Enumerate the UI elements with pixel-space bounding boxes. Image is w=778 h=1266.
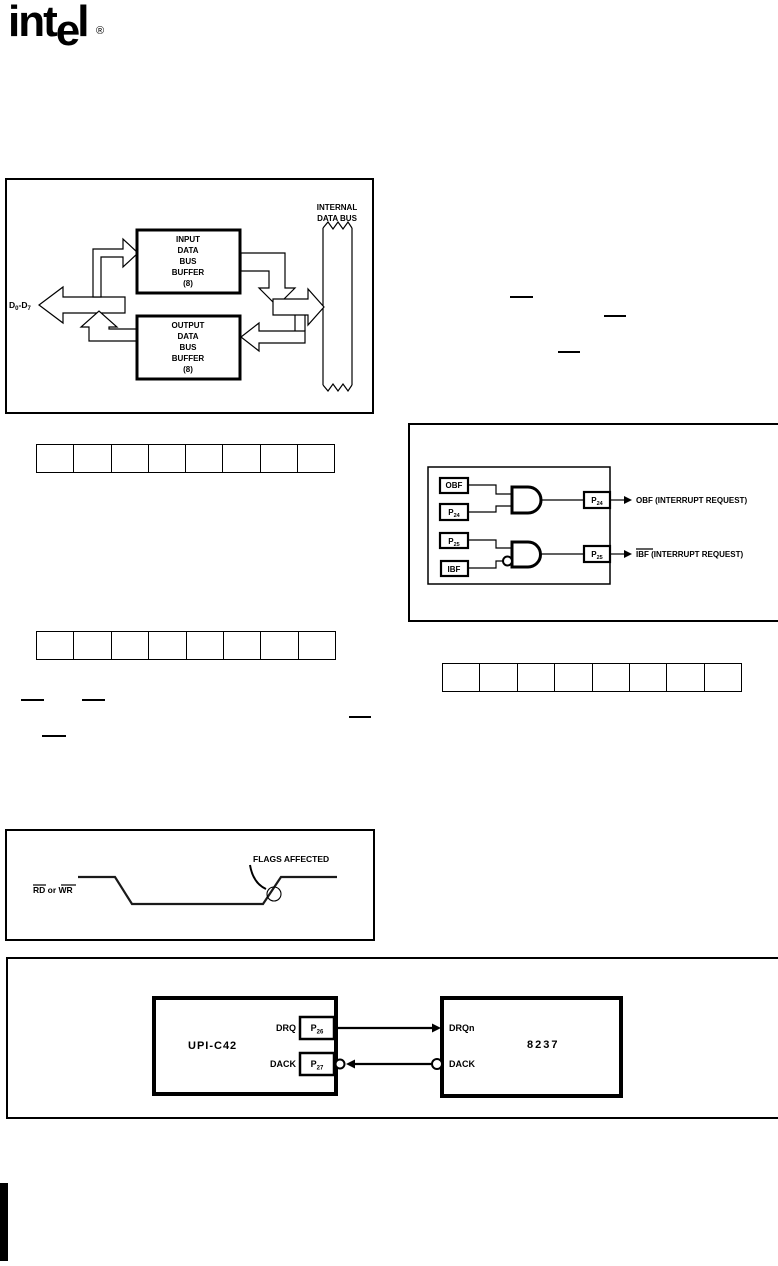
- svg-text:INPUT: INPUT: [176, 235, 200, 244]
- svg-text:BUFFER: BUFFER: [172, 354, 205, 363]
- intel-logo: intel ®: [8, 0, 87, 44]
- register-bit-cell: [299, 632, 335, 659]
- overline-mark: [510, 296, 533, 298]
- svg-text:DATA: DATA: [177, 332, 198, 341]
- register-bit-cell: [224, 632, 261, 659]
- svg-text:BUS: BUS: [180, 257, 198, 266]
- dack-p27-bubble: [336, 1060, 345, 1069]
- svg-text:OUTPUT: OUTPUT: [172, 321, 205, 330]
- and-gate-obf: [512, 487, 541, 513]
- ibf-flag-label: IBF: [448, 565, 461, 574]
- overline-mark: [349, 716, 371, 718]
- drq-label: DRQ: [276, 1023, 296, 1033]
- internal-data-bus-label-line1: INTERNAL: [317, 203, 358, 212]
- rd-or-wr-label: RD or WR: [33, 885, 73, 895]
- obf-flag-label: OBF: [446, 481, 463, 490]
- d0-d7-label: D0-D7: [9, 300, 31, 312]
- logo-text-e: e: [56, 6, 78, 55]
- figure-dma-interface: UPI-C42 8237 P26 P27 DRQ DACK DRQn DACK: [6, 957, 778, 1119]
- register-bit-cell: [74, 632, 111, 659]
- register-bit-cell: [186, 445, 223, 472]
- register-bit-cell: [112, 632, 149, 659]
- register-row-3: [442, 663, 742, 692]
- d0-d7-left-arrow: [39, 287, 125, 323]
- ibf-request-arrowhead: [624, 550, 632, 558]
- drqn-label: DRQn: [449, 1023, 475, 1033]
- internal-data-bus-label-line2: DATA BUS: [317, 214, 358, 223]
- upi-c42-box: [154, 998, 336, 1094]
- dack-label: DACK: [270, 1059, 296, 1069]
- upi-c42-label: UPI-C42: [188, 1040, 237, 1052]
- dma-8237-label: 8237: [527, 1039, 559, 1051]
- overline-mark: [558, 351, 580, 353]
- svg-text:BUS: BUS: [180, 343, 198, 352]
- svg-text:BUFFER: BUFFER: [172, 268, 205, 277]
- register-bit-cell: [555, 664, 592, 691]
- register-bit-cell: [149, 445, 186, 472]
- register-bit-cell: [261, 632, 298, 659]
- register-bit-cell: [667, 664, 704, 691]
- dma-interface-diagram: UPI-C42 8237 P26 P27 DRQ DACK DRQn DACK: [8, 959, 774, 1113]
- register-bit-cell: [518, 664, 555, 691]
- p27-port-box: [300, 1053, 334, 1075]
- flags-affected-label: FLAGS AFFECTED: [253, 854, 329, 864]
- inverter-bubble: [503, 557, 512, 566]
- obf-request-arrowhead: [624, 496, 632, 504]
- register-bit-cell: [630, 664, 667, 691]
- overline-mark: [42, 735, 66, 737]
- register-bit-cell: [149, 632, 186, 659]
- figure-data-bus-buffer: INTERNAL DATA BUS INPUT DATA BUS BUFFER: [5, 178, 374, 414]
- register-bit-cell: [37, 445, 74, 472]
- overline-mark: [21, 699, 44, 701]
- register-bit-cell: [443, 664, 480, 691]
- logo-text-int: int: [8, 0, 56, 46]
- dack-8237-label: DACK: [449, 1059, 475, 1069]
- internal-data-bus: [323, 222, 352, 391]
- ibf-interrupt-request-label: IBF (INTERRUPT REQUEST): [636, 550, 743, 559]
- interrupt-logic-diagram: OBF P24 P25 IBF P24 P25 OBF (INTERRUPT R…: [410, 425, 774, 616]
- register-bit-cell: [74, 445, 111, 472]
- flag-timing-diagram: RD or WR FLAGS AFFECTED: [7, 831, 369, 935]
- figure-interrupt-logic: OBF P24 P25 IBF P24 P25 OBF (INTERRUPT R…: [408, 423, 778, 622]
- p26-port-box: [300, 1017, 334, 1039]
- and-gate-ibf: [512, 542, 541, 567]
- register-bit-cell: [223, 445, 260, 472]
- overline-mark: [604, 315, 626, 317]
- figure-flag-timing: RD or WR FLAGS AFFECTED: [5, 829, 375, 941]
- overline-mark: [82, 699, 105, 701]
- input-buffer-in-arrow: [93, 239, 138, 297]
- obf-interrupt-request-label: OBF (INTERRUPT REQUEST): [636, 496, 747, 505]
- page-edge-tab: [0, 1183, 8, 1261]
- output-buffer-out-arrow: [81, 311, 137, 341]
- svg-text:(8): (8): [183, 279, 193, 288]
- data-bus-buffer-diagram: INTERNAL DATA BUS INPUT DATA BUS BUFFER: [7, 180, 368, 408]
- register-row-2: [36, 631, 336, 660]
- register-bit-cell: [593, 664, 630, 691]
- register-bit-cell: [298, 445, 334, 472]
- svg-text:(8): (8): [183, 365, 193, 374]
- dack-arrowhead: [346, 1060, 355, 1069]
- registered-trademark: ®: [96, 26, 104, 37]
- dack-8237-bubble: [432, 1059, 442, 1069]
- register-bit-cell: [37, 632, 74, 659]
- drq-arrowhead: [432, 1024, 441, 1033]
- register-bit-cell: [112, 445, 149, 472]
- logo-text-l: l: [77, 0, 87, 46]
- register-bit-cell: [261, 445, 298, 472]
- register-bit-cell: [480, 664, 517, 691]
- register-bit-cell: [187, 632, 224, 659]
- svg-text:DATA: DATA: [177, 246, 198, 255]
- flags-affected-pointer: [250, 865, 266, 889]
- register-row-1: [36, 444, 335, 473]
- input-buffer-down-arrow: [241, 253, 295, 306]
- register-bit-cell: [705, 664, 741, 691]
- strobe-waveform: [78, 877, 337, 904]
- datasheet-page: intel ® INTERNAL DATA BUS: [0, 0, 778, 1266]
